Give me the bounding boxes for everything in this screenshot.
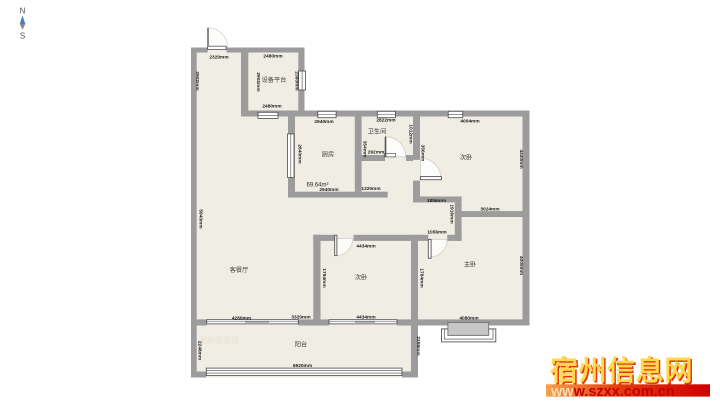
svg-text:4000mm: 4000mm <box>518 256 524 275</box>
svg-text:主卧: 主卧 <box>464 261 476 269</box>
svg-text:4440mm: 4440mm <box>518 149 524 168</box>
svg-text:2480mm: 2480mm <box>262 104 281 110</box>
svg-text:2258mm: 2258mm <box>415 336 421 355</box>
svg-text:N: N <box>20 7 26 16</box>
svg-text:卫生间: 卫生间 <box>368 128 387 136</box>
svg-text:356mm: 356mm <box>420 145 426 162</box>
svg-text:1012mm: 1012mm <box>408 124 414 143</box>
svg-text:客餐厅: 客餐厅 <box>230 266 249 274</box>
svg-text:宿州信息网: 宿州信息网 <box>550 354 693 387</box>
svg-text:设备平台: 设备平台 <box>262 76 287 84</box>
svg-text:2640mm: 2640mm <box>297 144 303 163</box>
svg-text:阳台: 阳台 <box>295 341 307 349</box>
svg-text:1784mm: 1784mm <box>321 268 327 287</box>
svg-text:1056mm: 1056mm <box>427 229 446 235</box>
svg-text:2480mm: 2480mm <box>263 54 282 60</box>
svg-text:2902mm: 2902mm <box>194 71 200 90</box>
svg-text:3320mm: 3320mm <box>291 314 310 320</box>
svg-text:4434mm: 4434mm <box>356 244 375 250</box>
svg-text:6920mm: 6920mm <box>293 363 312 369</box>
svg-text:2940mm: 2940mm <box>319 187 338 193</box>
svg-text:2320mm: 2320mm <box>209 55 228 61</box>
svg-text:1784mm: 1784mm <box>419 268 425 287</box>
svg-text:292mm: 292mm <box>368 150 385 156</box>
svg-text:宿州信息网: 宿州信息网 <box>199 335 239 345</box>
svg-text:2380mm: 2380mm <box>294 71 300 90</box>
svg-text:354mm: 354mm <box>362 141 368 158</box>
svg-text:2248mm: 2248mm <box>197 341 203 360</box>
svg-text:3024mm: 3024mm <box>480 207 499 213</box>
svg-text:2822mm: 2822mm <box>376 118 395 124</box>
svg-text:1916mm: 1916mm <box>449 204 455 223</box>
svg-text:4260mm: 4260mm <box>232 315 251 321</box>
svg-text:4080mm: 4080mm <box>459 315 478 321</box>
svg-text:4434mm: 4434mm <box>356 315 375 321</box>
svg-text:厨房: 厨房 <box>322 151 334 159</box>
svg-text:1856mm: 1856mm <box>427 198 446 204</box>
svg-text:www.szxx.com.cn: www.szxx.com.cn <box>550 384 675 400</box>
svg-text:次卧: 次卧 <box>355 274 367 282</box>
svg-text:4004mm: 4004mm <box>460 119 479 125</box>
svg-text:次卧: 次卧 <box>460 154 472 162</box>
svg-text:5940mm: 5940mm <box>198 209 204 228</box>
svg-text:S: S <box>20 32 25 41</box>
svg-text:2902mm: 2902mm <box>255 72 261 91</box>
svg-text:1320mm: 1320mm <box>361 186 380 192</box>
svg-text:2940mm: 2940mm <box>314 119 333 125</box>
